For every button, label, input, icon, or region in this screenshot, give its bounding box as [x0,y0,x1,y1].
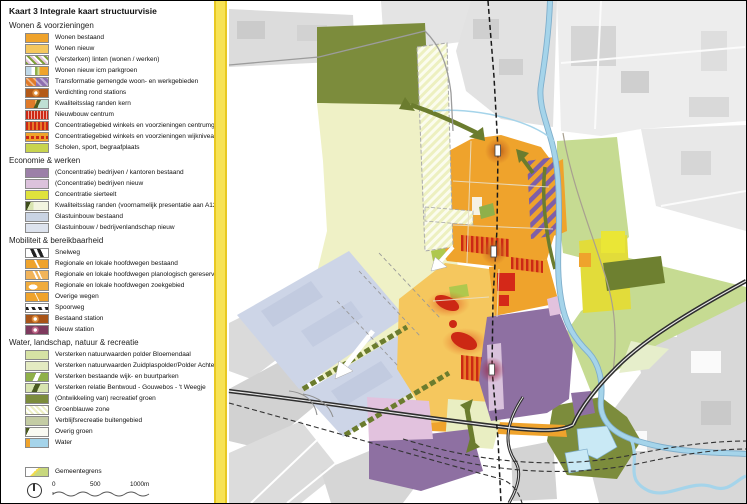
legend-item-label: Nieuwbouw centrum [55,111,114,118]
legend-swatch-nieuwbouw-icon [25,110,49,120]
legend-item: Concentratiegebied winkels en voorzienin… [9,120,214,131]
legend-swatch-hoofdweg-bestaand-icon [25,259,49,269]
legend-item: Versterken relatie Bentwoud - Gouwebos -… [9,382,214,393]
legend-swatch-parkgroen-icon [25,66,49,76]
scale-tick: 500 [90,481,130,490]
legend-item: Kwaliteitsslag randen kern [9,98,214,109]
legend-item-label: Wonen bestaand [55,34,104,41]
legend-item: (Concentratie) bedrijven nieuw [9,178,214,189]
legend-item-label: Kwaliteitsslag randen kern [55,100,131,107]
legend-item: Glastuinbouw / bedrijvenlandschap nieuw [9,222,214,233]
legend-item-label: Water [55,439,72,446]
legend-item-label: Bestaand station [55,315,103,322]
legend-item-label: Glastuinbouw / bedrijvenlandschap nieuw [55,224,175,231]
legend-swatch-conc-centrum-icon [25,121,49,131]
legend-item: Nieuw station [9,324,214,335]
scale-wave-line [52,490,152,497]
legend-swatch-recreatief-icon [25,394,49,404]
legend-swatch-kwalrand-kern-icon [25,99,49,109]
legend-item-label: Versterken bestaande wijk- en buurtparke… [55,373,179,380]
legend-item: Groenblauwe zone [9,404,214,415]
legend-panel: Kaart 3 Integrale kaart structuurvisie W… [1,1,214,503]
legend-swatch-hoofdweg-plan-icon [25,270,49,280]
legend-item-label: Concentratiegebied winkels en voorzienin… [55,122,231,129]
legend-item: Nieuwbouw centrum [9,109,214,120]
legend-swatch-wonen-bestaand-icon [25,33,49,43]
legend-item-gemeentegrens: Gemeentegrens [9,466,214,477]
legend-item: Versterken natuurwaarden Zuidplaspolder/… [9,360,214,371]
legend-swatch-verdichting-icon [25,88,49,98]
legend-item-label: Concentratie sierteelt [55,191,116,198]
legend-item-label: Kwaliteitsslag randen (voornamelijk pres… [55,202,219,209]
legend-item: (Concentratie) bedrijven / kantoren best… [9,167,214,178]
legend-section-header: Economie & werken [9,156,214,166]
legend-item-label: Groenblauwe zone [55,406,110,413]
scale-tick: 1000m [130,481,149,490]
legend-item-label: Verdichting rond stations [55,89,126,96]
legend-item: Glastuinbouw bestaand [9,211,214,222]
legend-section-water-landschap: Water, landschap, natuur & recreatie Ver… [9,338,214,448]
legend-item: Wonen bestaand [9,32,214,43]
legend-swatch-conc-wijk-icon [25,132,49,142]
structuurvisie-map-page: Kaart 3 Integrale kaart structuurvisie W… [0,0,747,504]
scale-ticks: 0 500 1000m [52,481,162,490]
legend-item: Water [9,437,214,448]
legend-item: Versterken natuurwaarden polder Bloemend… [9,349,214,360]
legend-item: Overige wegen [9,291,214,302]
legend-item-label: Scholen, sport, begraafplaats [55,144,140,151]
legend-item-label: Wonen nieuw icm parkgroen [55,67,137,74]
legend-item-label: Versterken natuurwaarden polder Bloemend… [55,351,191,358]
legend-item-label: Gemeentegrens [55,468,102,475]
legend-swatch-water-icon [25,438,49,448]
legend-swatch-station-bestaand-icon [25,314,49,324]
legend-item-label: Versterken relatie Bentwoud - Gouwebos -… [55,384,206,391]
legend-swatch-overig-groen-icon [25,427,49,437]
legend-item: Wonen nieuw [9,43,214,54]
north-arrow-icon [27,483,42,498]
legend-swatch-bedrijven-bestaand-icon [25,168,49,178]
legend-item-label: Nieuw station [55,326,94,333]
legend-swatch-sierteelt-icon [25,190,49,200]
legend-item-label: Regionale en lokale hoofdwegen bestaand [55,260,178,267]
legend-item-label: (Concentratie) bedrijven nieuw [55,180,143,187]
legend-item-label: Glastuinbouw bestaand [55,213,123,220]
legend-section-header: Water, landschap, natuur & recreatie [9,338,214,348]
legend-swatch-snelweg-icon [25,248,49,258]
legend-item-label: Verblijfsrecreatie buitengebied [55,417,142,424]
legend-item: Wonen nieuw icm parkgroen [9,65,214,76]
legend-item: Snelweg [9,247,214,258]
legend-swatch-gemeentegrens-icon [25,467,49,477]
legend-item: Overig groen [9,426,214,437]
legend-swatch-hoofdweg-zoek-icon [25,281,49,291]
legend-item-label: Snelweg [55,249,80,256]
legend-swatch-transformatie-icon [25,77,49,87]
legend-item-label: (Ontwikkeling van) recreatief groen [55,395,156,402]
legend-section-wonen: Wonen & voorzieningen Wonen bestaand Won… [9,21,214,153]
legend-item-label: Overige wegen [55,293,99,300]
legend-item-label: Spoorweg [55,304,84,311]
legend-item: Regionale en lokale hoofdwegen zoekgebie… [9,280,214,291]
legend-section-header: Wonen & voorzieningen [9,21,214,31]
legend-item: (Versterken) linten (wonen / werken) [9,54,214,65]
legend-swatch-spoorweg-icon [25,303,49,313]
legend-swatch-glas-bestaand-icon [25,212,49,222]
legend-section-header: Mobiliteit & bereikbaarheid [9,236,214,246]
legend-swatch-bedrijven-nieuw-icon [25,179,49,189]
legend-item: Concentratie sierteelt [9,189,214,200]
legend-item: Spoorweg [9,302,214,313]
legend-swatch-glas-nieuw-icon [25,223,49,233]
legend-item: Verdichting rond stations [9,87,214,98]
legend-swatch-relatie-icon [25,383,49,393]
legend-swatch-overige-wegen-icon [25,292,49,302]
legend-swatch-parken-icon [25,372,49,382]
legend-item-label: Transformatie gemengde woon- en werkgebi… [55,78,198,85]
gemeentegrens-boundary-line [214,1,227,503]
legend-item-label: Versterken natuurwaarden Zuidplaspolder/… [55,362,222,369]
page-title: Kaart 3 Integrale kaart structuurvisie [9,5,214,18]
legend-item: Kwaliteitsslag randen (voornamelijk pres… [9,200,214,211]
legend-item-label: Concentratiegebied winkels en voorzienin… [55,133,218,140]
legend-section-mobiliteit: Mobiliteit & bereikbaarheid Snelweg Regi… [9,236,214,335]
legend-item-label: Wonen nieuw [55,45,94,52]
scale-tick: 0 [52,481,90,490]
map-canvas [227,1,746,503]
legend-item: Verblijfsrecreatie buitengebied [9,415,214,426]
legend-swatch-wonen-nieuw-icon [25,44,49,54]
legend-swatch-kwalrand-a12-icon [25,201,49,211]
legend-item-label: Overig groen [55,428,93,435]
legend-swatch-verblijf-icon [25,416,49,426]
legend-item-label: (Concentratie) bedrijven / kantoren best… [55,169,184,176]
legend-item: Scholen, sport, begraafplaats [9,142,214,153]
legend-item-label: Regionale en lokale hoofdwegen zoekgebie… [55,282,184,289]
legend-swatch-natuur-zuidplas-icon [25,361,49,371]
legend-item-label: Regionale en lokale hoofdwegen planologi… [55,271,227,278]
legend-item: (Ontwikkeling van) recreatief groen [9,393,214,404]
legend-item: Regionale en lokale hoofdwegen bestaand [9,258,214,269]
legend-swatch-linten-icon [25,55,49,65]
legend-item: Transformatie gemengde woon- en werkgebi… [9,76,214,87]
legend-swatch-scholen-icon [25,143,49,153]
legend-item: Bestaand station [9,313,214,324]
legend-section-economie: Economie & werken (Concentratie) bedrijv… [9,156,214,233]
legend-item: Versterken bestaande wijk- en buurtparke… [9,371,214,382]
scale-bar: 0 500 1000m [9,481,214,503]
legend-swatch-natuur-bloemendaal-icon [25,350,49,360]
legend-item: Concentratiegebied winkels en voorzienin… [9,131,214,142]
legend-item: Regionale en lokale hoofdwegen planologi… [9,269,214,280]
legend-swatch-station-nieuw-icon [25,325,49,335]
legend-swatch-groenblauw-icon [25,405,49,415]
legend-item-label: (Versterken) linten (wonen / werken) [55,56,159,63]
